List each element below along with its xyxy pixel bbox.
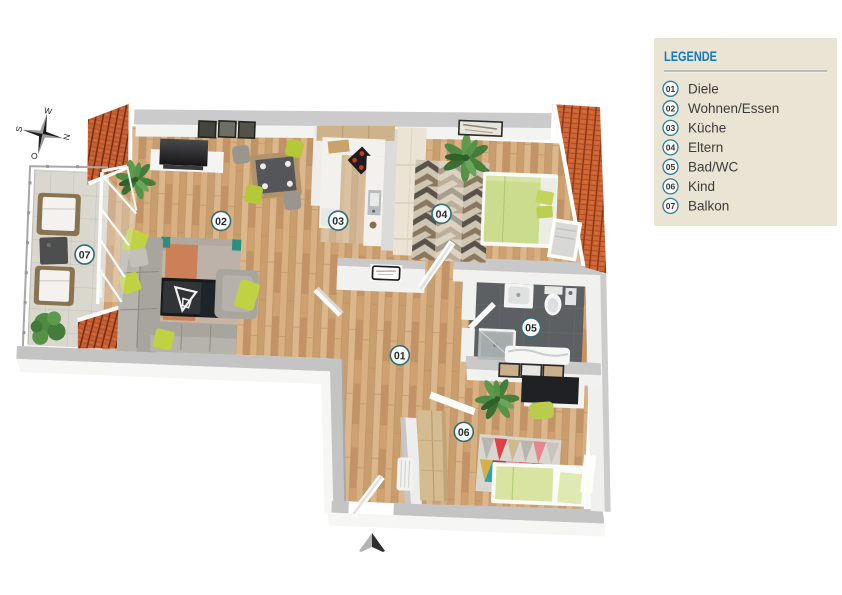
svg-text:07: 07	[78, 249, 90, 261]
svg-text:Küche: Küche	[688, 121, 726, 136]
svg-text:05: 05	[666, 162, 676, 172]
svg-text:03: 03	[332, 215, 344, 227]
svg-text:LEGENDE: LEGENDE	[664, 48, 717, 64]
svg-text:01: 01	[394, 350, 406, 362]
svg-text:05: 05	[525, 322, 537, 334]
svg-text:Diele: Diele	[688, 82, 719, 97]
svg-text:Bad/WC: Bad/WC	[688, 160, 739, 175]
svg-text:Kind: Kind	[688, 179, 715, 194]
svg-text:01: 01	[666, 84, 676, 94]
svg-text:02: 02	[666, 104, 676, 114]
svg-text:Balkon: Balkon	[688, 199, 729, 214]
svg-text:07: 07	[666, 201, 676, 211]
svg-text:03: 03	[666, 123, 676, 133]
svg-text:04: 04	[435, 209, 447, 221]
svg-text:02: 02	[215, 216, 227, 228]
svg-text:Wohnen/Essen: Wohnen/Essen	[688, 101, 779, 116]
svg-text:04: 04	[666, 143, 676, 153]
svg-text:06: 06	[666, 182, 676, 192]
svg-text:06: 06	[458, 427, 470, 439]
svg-text:Eltern: Eltern	[688, 140, 723, 155]
